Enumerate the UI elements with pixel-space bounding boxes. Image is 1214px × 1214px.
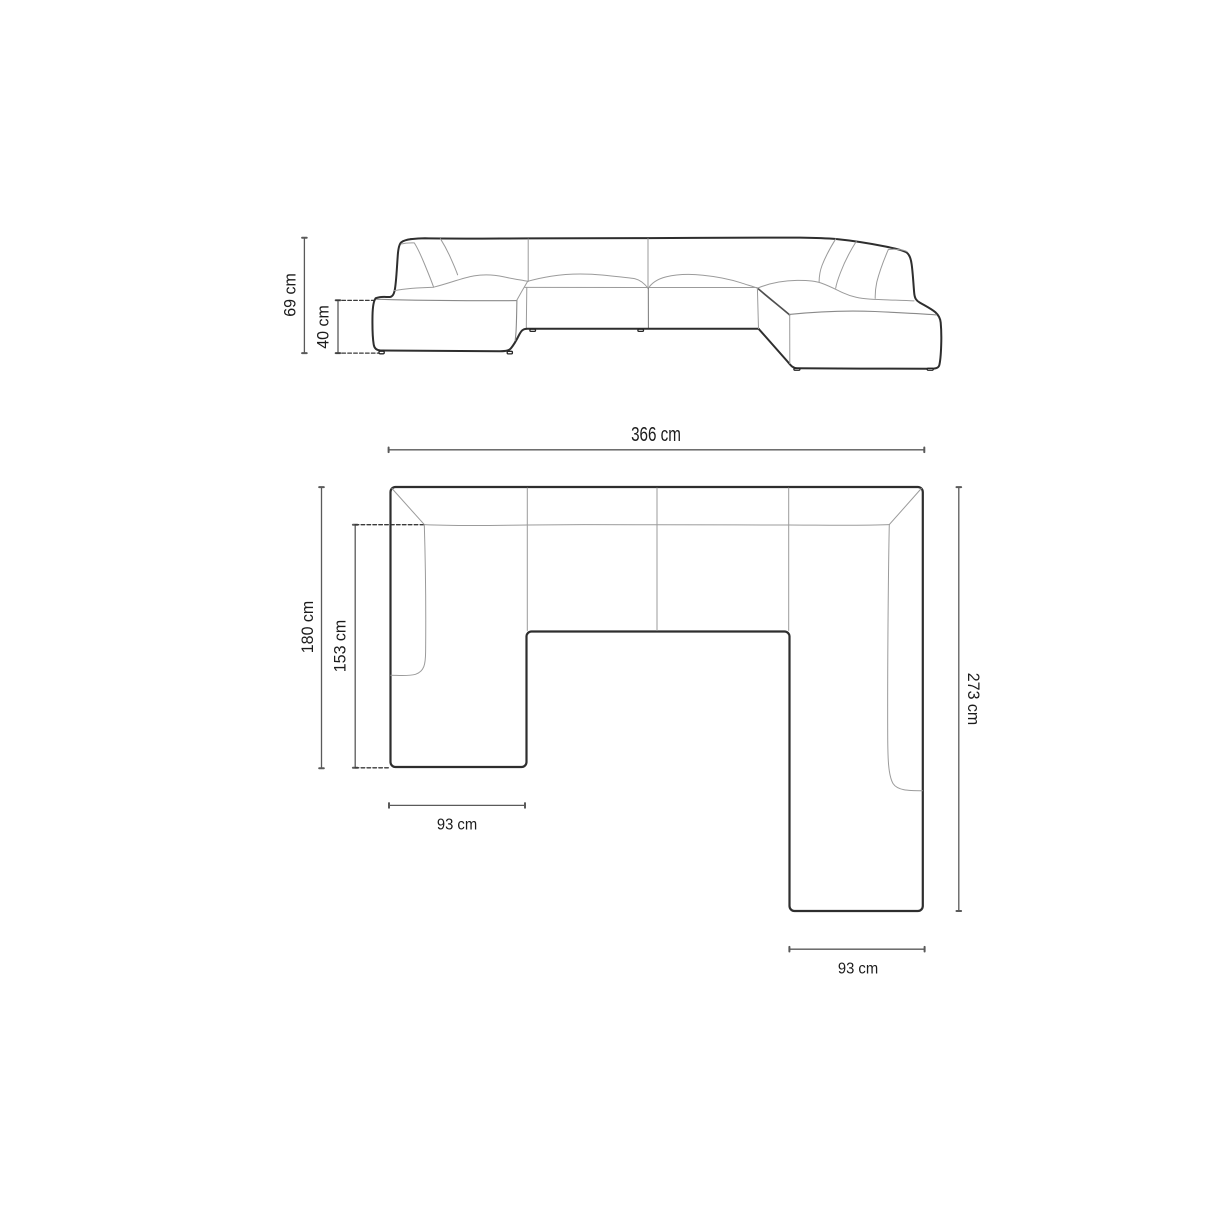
svg-text:180 cm: 180 cm [299, 601, 317, 653]
svg-text:153 cm: 153 cm [331, 620, 349, 672]
svg-text:93 cm: 93 cm [838, 960, 878, 977]
svg-text:273 cm: 273 cm [964, 673, 982, 725]
svg-text:69 cm: 69 cm [281, 273, 299, 317]
svg-text:40 cm: 40 cm [314, 305, 332, 349]
svg-text:93 cm: 93 cm [437, 816, 477, 833]
svg-text:366 cm: 366 cm [631, 423, 681, 446]
